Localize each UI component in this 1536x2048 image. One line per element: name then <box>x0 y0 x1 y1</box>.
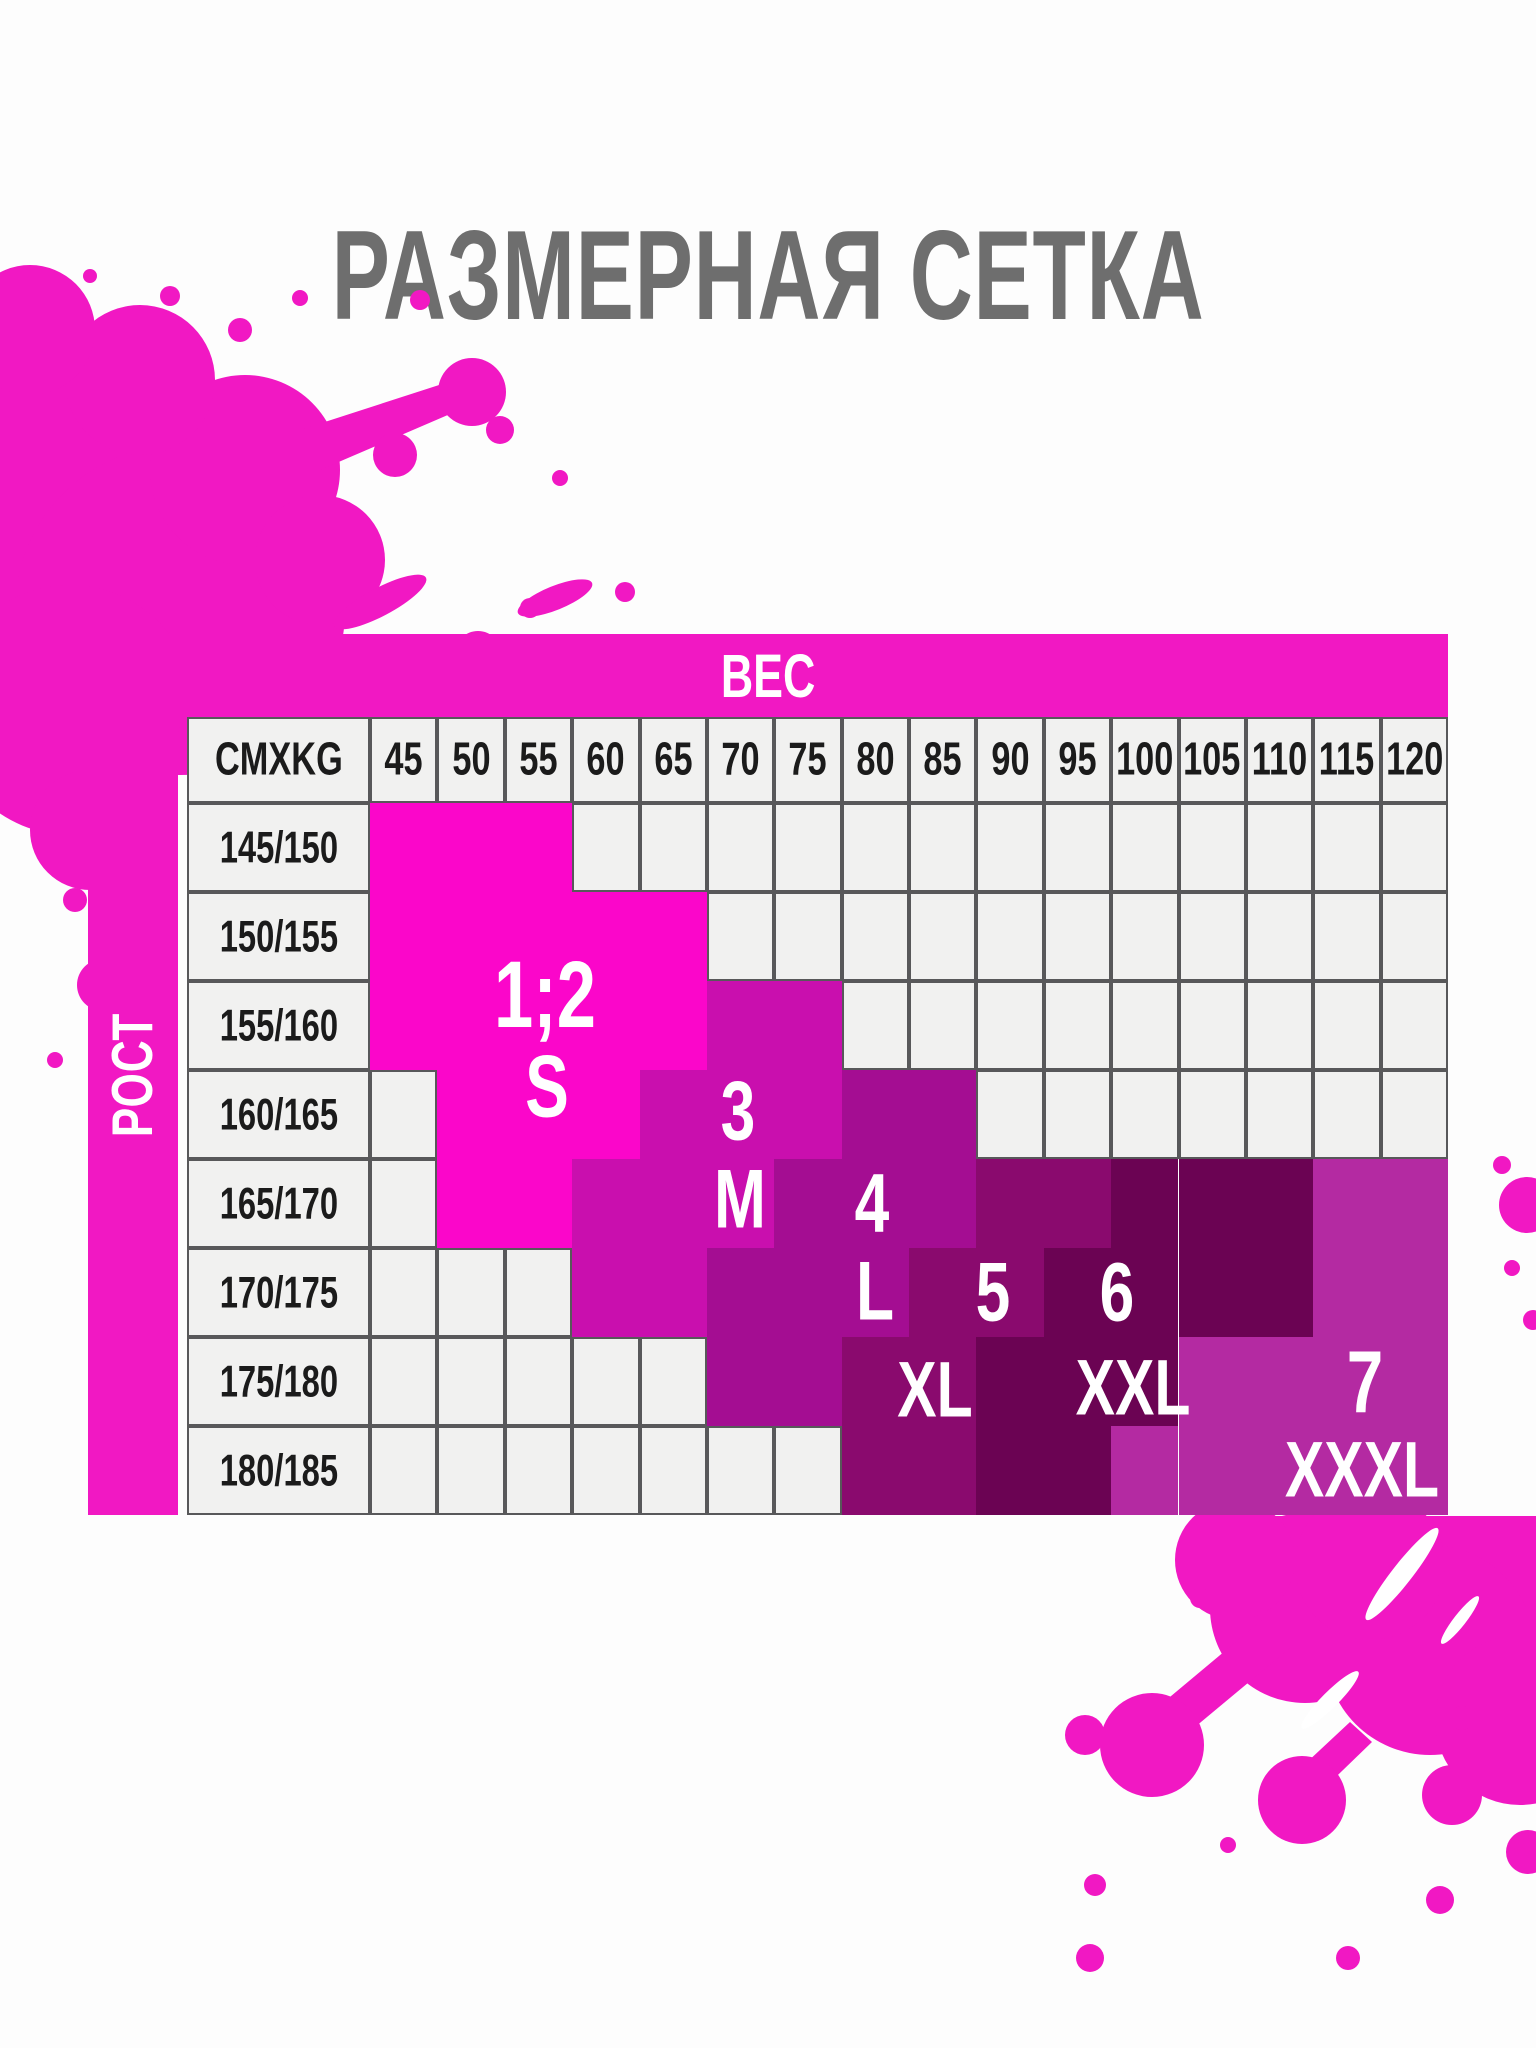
empty-cell <box>505 1337 572 1426</box>
size-cell-X <box>1044 1426 1111 1515</box>
size-cell-V <box>1381 1248 1448 1337</box>
empty-cell <box>437 1426 504 1515</box>
size-cell-M <box>640 1159 707 1248</box>
weight-header-cell: 90 <box>976 717 1043 803</box>
empty-cell <box>640 1337 707 1426</box>
height-label-cell-text: 155/160 <box>219 1000 337 1050</box>
weight-header-cell: 80 <box>842 717 909 803</box>
size-cell-X <box>1179 1248 1246 1337</box>
empty-cell <box>774 892 841 981</box>
size-cell-S <box>370 981 437 1070</box>
weight-header-cell-text: 70 <box>721 734 759 787</box>
empty-cell <box>370 1248 437 1337</box>
empty-cell <box>1111 892 1178 981</box>
size-cell-L <box>909 1159 976 1248</box>
weight-header-cell-text: 50 <box>452 734 490 787</box>
weight-header-cell: 100 <box>1111 717 1178 803</box>
size-cell-M <box>640 1070 707 1159</box>
height-label-cell: 175/180 <box>187 1337 370 1426</box>
weight-header-cell: 55 <box>505 717 572 803</box>
weight-header-cell: 95 <box>1044 717 1111 803</box>
size-region-label: S <box>525 1043 569 1131</box>
empty-cell <box>976 803 1043 892</box>
size-region-label: 3 <box>721 1070 756 1154</box>
empty-cell <box>1044 803 1111 892</box>
empty-cell <box>370 1070 437 1159</box>
height-label-cell-text: 170/175 <box>219 1267 337 1317</box>
empty-cell <box>640 803 707 892</box>
empty-cell <box>976 981 1043 1070</box>
size-cell-L <box>707 1248 774 1337</box>
weight-header-cell-text: 95 <box>1058 734 1096 787</box>
empty-cell <box>1381 1070 1448 1159</box>
weight-header-cell-text: 110 <box>1252 734 1307 787</box>
empty-cell <box>909 803 976 892</box>
weight-header-cell-text: 65 <box>654 734 692 787</box>
empty-cell <box>1044 892 1111 981</box>
size-cell-F <box>909 1426 976 1515</box>
size-region-label: 1;2 <box>494 948 596 1043</box>
empty-cell <box>1044 1070 1111 1159</box>
weight-header-cell: 45 <box>370 717 437 803</box>
weight-header-cell-text: 45 <box>385 734 423 787</box>
height-label-cell: 155/160 <box>187 981 370 1070</box>
empty-cell <box>370 1426 437 1515</box>
weight-header-cell: 60 <box>572 717 639 803</box>
size-cell-F <box>909 1248 976 1337</box>
weight-header-cell: 50 <box>437 717 504 803</box>
empty-cell <box>1246 1070 1313 1159</box>
empty-cell <box>1246 803 1313 892</box>
empty-cell <box>1111 981 1178 1070</box>
weight-header-cell-text: 100 <box>1116 734 1173 787</box>
weight-header-cell: 105 <box>1179 717 1246 803</box>
empty-cell <box>1313 981 1380 1070</box>
size-cell-V <box>1313 1248 1380 1337</box>
size-cell-M <box>774 1070 841 1159</box>
weight-header-cell-text: 55 <box>519 734 557 787</box>
empty-cell <box>1381 803 1448 892</box>
height-label-cell-text: 150/155 <box>219 911 337 961</box>
size-region-label: M <box>714 1158 766 1242</box>
size-cell-X <box>1111 1159 1178 1248</box>
empty-cell <box>842 981 909 1070</box>
height-label-cell-text: 165/170 <box>219 1178 337 1228</box>
size-cell-L <box>707 1337 774 1426</box>
weight-header-cell-text: 90 <box>991 734 1029 787</box>
corner-cell: CMXKG <box>187 717 370 803</box>
size-cell-L <box>774 1337 841 1426</box>
height-axis-label: РОСТ <box>88 634 178 1515</box>
size-cell-V <box>1179 1426 1246 1515</box>
empty-cell <box>1313 803 1380 892</box>
empty-cell <box>909 981 976 1070</box>
empty-cell <box>572 1426 639 1515</box>
size-cell-V <box>1111 1426 1178 1515</box>
empty-cell <box>1381 981 1448 1070</box>
weight-header-cell: 75 <box>774 717 841 803</box>
empty-cell <box>437 1337 504 1426</box>
size-cell-M <box>572 1248 639 1337</box>
empty-cell <box>976 892 1043 981</box>
weight-header-cell-text: 75 <box>789 734 827 787</box>
size-cell-M <box>707 981 774 1070</box>
weight-header-cell-text: 60 <box>587 734 625 787</box>
size-region-label: XXXL <box>1285 1430 1439 1509</box>
empty-cell <box>774 1426 841 1515</box>
size-cell-S <box>640 892 707 981</box>
empty-cell <box>774 803 841 892</box>
weight-header-cell: 65 <box>640 717 707 803</box>
height-label-cell: 160/165 <box>187 1070 370 1159</box>
size-cell-V <box>1246 1337 1313 1426</box>
size-region-label: XXL <box>1076 1348 1191 1427</box>
empty-cell <box>1179 1070 1246 1159</box>
empty-cell <box>370 1337 437 1426</box>
size-cell-F <box>976 1159 1043 1248</box>
size-cell-S <box>370 803 437 892</box>
empty-cell <box>1179 981 1246 1070</box>
size-cell-M <box>572 1159 639 1248</box>
size-cell-X <box>976 1337 1043 1426</box>
empty-cell <box>707 1426 774 1515</box>
height-label-cell: 165/170 <box>187 1159 370 1248</box>
size-cell-S <box>370 892 437 981</box>
weight-axis-label: ВЕС <box>88 634 1448 717</box>
size-cell-X <box>976 1426 1043 1515</box>
empty-cell <box>707 803 774 892</box>
weight-header-cell-text: 85 <box>924 734 962 787</box>
weight-header-cell: 120 <box>1381 717 1448 803</box>
size-cell-S <box>640 981 707 1070</box>
size-cell-V <box>1313 1159 1380 1248</box>
weight-header-cell: 85 <box>909 717 976 803</box>
empty-cell <box>1111 803 1178 892</box>
corner-cell-text: CMXKG <box>215 734 343 787</box>
size-cell-S <box>572 1070 639 1159</box>
size-cell-S <box>505 803 572 892</box>
size-cell-X <box>1246 1159 1313 1248</box>
size-cell-M <box>640 1248 707 1337</box>
height-label-cell: 150/155 <box>187 892 370 981</box>
empty-cell <box>437 1248 504 1337</box>
size-cell-L <box>909 1070 976 1159</box>
empty-cell <box>572 803 639 892</box>
height-label-cell-text: 175/180 <box>219 1356 337 1406</box>
empty-cell <box>842 892 909 981</box>
empty-cell <box>505 1426 572 1515</box>
size-chart-infographic: РАЗМЕРНАЯ СЕТКА ВЕС РОСТ CMXKG4550556065… <box>0 0 1536 2048</box>
empty-cell <box>505 1248 572 1337</box>
size-region-label: L <box>856 1250 894 1334</box>
size-cell-S <box>437 803 504 892</box>
empty-cell <box>1179 892 1246 981</box>
empty-cell <box>572 1337 639 1426</box>
size-cell-L <box>774 1159 841 1248</box>
weight-header-cell-text: 115 <box>1319 734 1374 787</box>
size-cell-V <box>1381 1337 1448 1426</box>
empty-cell <box>909 892 976 981</box>
size-cell-M <box>774 981 841 1070</box>
size-region-label: 4 <box>855 1162 890 1246</box>
height-label-cell: 180/185 <box>187 1426 370 1515</box>
size-cell-V <box>1381 1159 1448 1248</box>
size-cell-S <box>505 1159 572 1248</box>
size-region-label: XL <box>897 1350 972 1429</box>
empty-cell <box>1246 981 1313 1070</box>
empty-cell <box>1044 981 1111 1070</box>
size-cell-F <box>1044 1159 1111 1248</box>
size-region-label: 7 <box>1347 1339 1383 1427</box>
empty-cell <box>1179 803 1246 892</box>
empty-cell <box>1313 1070 1380 1159</box>
size-cell-S <box>437 1070 504 1159</box>
size-cell-F <box>842 1426 909 1515</box>
size-cell-X <box>1246 1248 1313 1337</box>
empty-cell <box>370 1159 437 1248</box>
empty-cell <box>976 1070 1043 1159</box>
size-cell-X <box>1179 1159 1246 1248</box>
empty-cell <box>1111 1070 1178 1159</box>
empty-cell <box>842 803 909 892</box>
empty-cell <box>1246 892 1313 981</box>
height-label-cell-text: 145/150 <box>219 822 337 872</box>
weight-header-cell: 110 <box>1246 717 1313 803</box>
empty-cell <box>707 892 774 981</box>
height-label-cell-text: 180/185 <box>219 1445 337 1495</box>
size-region-label: 6 <box>1100 1251 1135 1335</box>
empty-cell <box>1313 892 1380 981</box>
height-label-cell-text: 160/165 <box>219 1089 337 1139</box>
empty-cell <box>1381 892 1448 981</box>
empty-cell <box>640 1426 707 1515</box>
height-label-cell: 145/150 <box>187 803 370 892</box>
size-region-label: 5 <box>976 1251 1011 1335</box>
weight-header-cell-text: 105 <box>1184 734 1241 787</box>
weight-header-cell: 70 <box>707 717 774 803</box>
weight-header-cell-text: 80 <box>856 734 894 787</box>
weight-header-cell-text: 120 <box>1386 734 1443 787</box>
weight-header-cell: 115 <box>1313 717 1380 803</box>
size-cell-L <box>774 1248 841 1337</box>
size-cell-L <box>842 1070 909 1159</box>
size-cell-S <box>437 1159 504 1248</box>
height-label-cell: 170/175 <box>187 1248 370 1337</box>
